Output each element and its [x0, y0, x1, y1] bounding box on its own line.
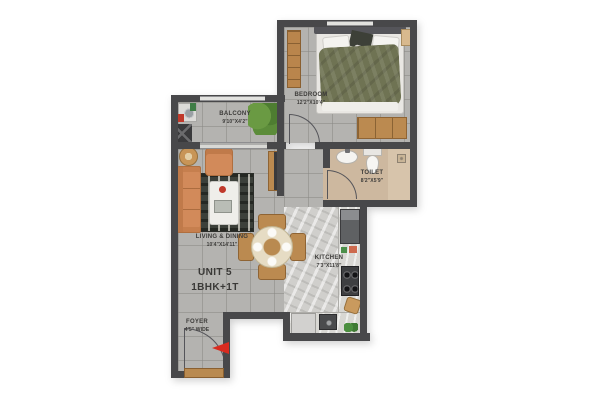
bedroom-name: BEDROOM	[281, 91, 341, 100]
living-name: LIVING & DINING	[182, 233, 262, 242]
wall-mid-c	[315, 142, 417, 149]
wall-foyer-bottom-a	[171, 371, 184, 378]
wall-bedroom-right	[410, 20, 417, 207]
kitchen-item-red	[349, 246, 357, 253]
bedroom-label: BEDROOM 12'2"X10'4"	[281, 91, 341, 108]
wall-toilet-bottom	[323, 200, 417, 207]
balcony-dims: 9'10"X4'2"	[203, 119, 267, 127]
wall-mid-a	[171, 142, 200, 149]
fridge-icon	[340, 209, 360, 244]
living-label: LIVING & DINING 10'4"X14'11"	[182, 233, 262, 250]
balcony-window	[200, 96, 265, 101]
balcony-sliding-door	[200, 142, 267, 149]
herb-plants	[344, 323, 358, 332]
wall-step	[223, 312, 290, 319]
kitchen-label: KITCHEN 7'3"X11'8"	[300, 254, 358, 271]
toilet-name: TOILET	[342, 169, 402, 178]
unit-plan: BALCONY 9'10"X4'2" BEDROOM 12'2"X10'4" T…	[0, 0, 600, 400]
laundry-basket	[177, 114, 184, 122]
wall-mid-b	[267, 142, 286, 149]
toilet-label: TOILET 8'2"X5'9"	[342, 169, 402, 186]
balcony-name: BALCONY	[203, 110, 267, 119]
wall-kitchen-right	[360, 200, 367, 341]
kitchen-item-green	[341, 247, 347, 253]
kitchen-dims: 7'3"X11'8"	[300, 263, 358, 271]
foyer-dims: 4'5" WIDE	[172, 327, 222, 335]
unit-title-line2: 1BHK+1T	[186, 281, 244, 296]
wardrobe	[287, 30, 301, 88]
entry-arrow-icon	[212, 342, 229, 354]
wall-toilet-left	[323, 149, 330, 168]
side-table	[179, 147, 198, 166]
wall-kitchen-bottom	[283, 333, 370, 341]
toilet-dims: 8'2"X5'9"	[342, 178, 402, 186]
table-decor-red	[219, 186, 226, 193]
living-dims: 10'4"X14'11"	[182, 242, 262, 250]
corridor-floor	[284, 149, 323, 207]
balcony-label: BALCONY 9'10"X4'2"	[203, 110, 267, 127]
unit-title: UNIT 5 1BHK+1T	[186, 266, 244, 295]
detergent-bottle	[190, 103, 196, 111]
dresser	[357, 117, 407, 139]
wall-left-outer	[171, 95, 178, 378]
kitchen-name: KITCHEN	[300, 254, 358, 263]
unit-title-line1: UNIT 5	[186, 266, 244, 281]
floor-plan: BALCONY 9'10"X4'2" BEDROOM 12'2"X10'4" T…	[0, 0, 600, 400]
table-books	[214, 200, 232, 213]
sofa	[177, 166, 201, 233]
foyer-name: FOYER	[172, 318, 222, 327]
kitchen-sink-icon	[319, 314, 337, 330]
wall-foyer-bottom-b	[224, 371, 230, 378]
armchair	[205, 148, 233, 176]
bedroom-window	[327, 21, 373, 26]
shower-drain-icon	[397, 154, 406, 163]
foyer-label: FOYER 4'5" WIDE	[172, 318, 222, 335]
bedroom-dims: 12'2"X10'4"	[281, 100, 341, 108]
entry-threshold	[184, 368, 224, 378]
